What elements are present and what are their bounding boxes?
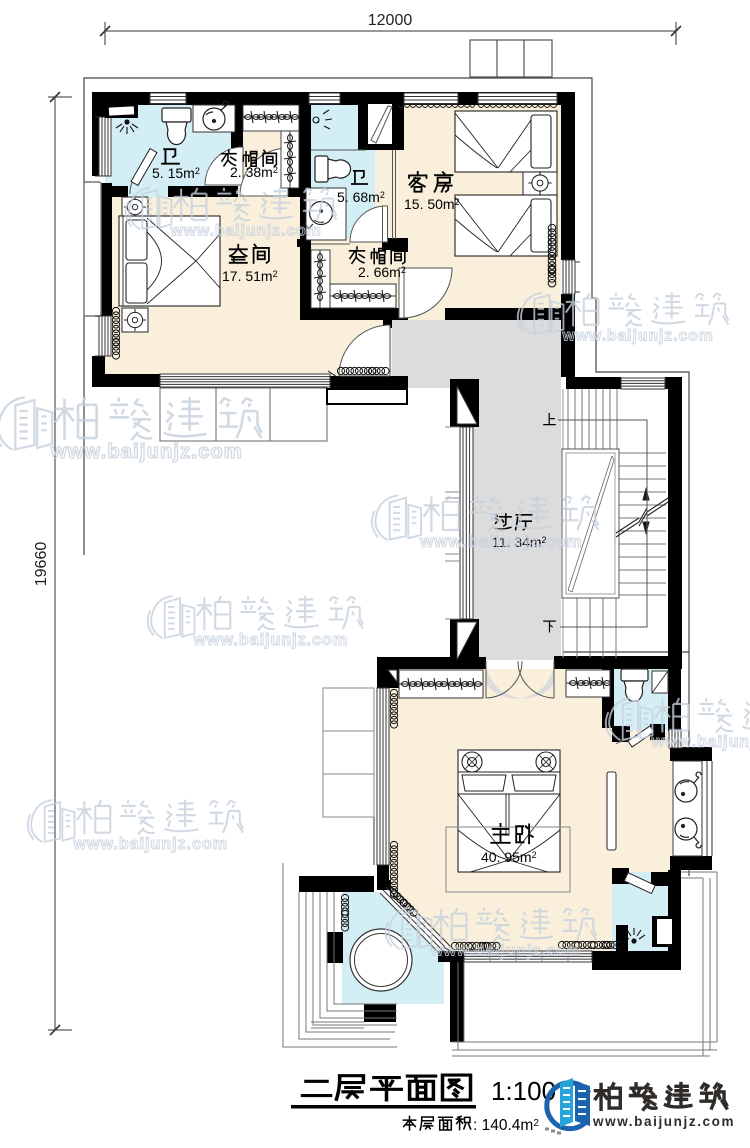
svg-text:: 140.4m2: : 140.4m2 (473, 1117, 539, 1134)
svg-text:12000: 12000 (368, 12, 413, 29)
svg-text:40. 95m2: 40. 95m2 (481, 849, 537, 865)
svg-text:2. 38m2: 2. 38m2 (230, 164, 278, 180)
svg-text:15. 50m2: 15. 50m2 (404, 196, 460, 212)
svg-text:2. 66m2: 2. 66m2 (358, 264, 406, 280)
svg-text:19660: 19660 (33, 542, 50, 587)
svg-text:5. 15m2: 5. 15m2 (152, 165, 200, 181)
svg-text:www.baijunjz.com: www.baijunjz.com (592, 1114, 735, 1129)
svg-text:5. 68m2: 5. 68m2 (337, 189, 385, 205)
svg-text:17. 51m2: 17. 51m2 (222, 268, 278, 284)
